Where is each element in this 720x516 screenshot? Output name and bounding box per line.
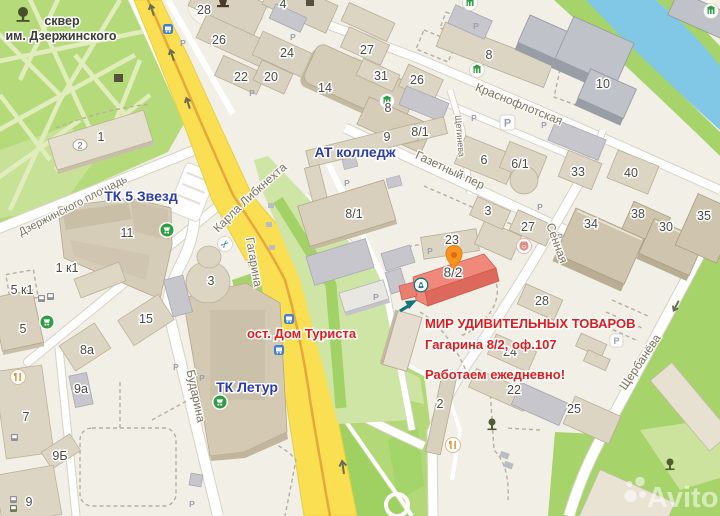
svg-text:20: 20 xyxy=(264,70,278,84)
svg-text:ТК 5 Звезд: ТК 5 Звезд xyxy=(104,188,178,204)
svg-text:33: 33 xyxy=(571,165,585,179)
svg-text:8: 8 xyxy=(486,48,493,62)
svg-text:7: 7 xyxy=(23,410,30,424)
svg-text:40: 40 xyxy=(624,166,638,180)
svg-text:6/1: 6/1 xyxy=(511,157,528,171)
svg-text:P: P xyxy=(290,32,296,42)
svg-text:P: P xyxy=(504,118,511,130)
svg-text:P: P xyxy=(180,38,186,48)
svg-text:6: 6 xyxy=(481,153,488,167)
svg-text:28: 28 xyxy=(197,3,211,17)
svg-text:P: P xyxy=(344,178,350,188)
svg-text:1 к1: 1 к1 xyxy=(56,261,79,275)
svg-text:26: 26 xyxy=(212,33,226,47)
svg-text:1: 1 xyxy=(98,130,105,144)
svg-text:P: P xyxy=(373,292,379,302)
svg-text:10: 10 xyxy=(596,77,610,91)
svg-text:34: 34 xyxy=(584,217,598,231)
svg-text:P: P xyxy=(173,362,179,372)
svg-text:11: 11 xyxy=(121,226,134,240)
svg-text:26: 26 xyxy=(410,73,424,87)
svg-text:АТ колледж: АТ колледж xyxy=(314,144,396,160)
svg-text:2: 2 xyxy=(437,397,444,411)
svg-text:8/1: 8/1 xyxy=(411,125,428,139)
svg-text:5: 5 xyxy=(20,322,27,336)
svg-text:P: P xyxy=(613,336,619,346)
svg-text:28: 28 xyxy=(535,294,549,308)
svg-text:22: 22 xyxy=(234,70,248,84)
svg-text:9: 9 xyxy=(26,495,33,509)
svg-text:ТК Летур: ТК Летур xyxy=(216,379,278,395)
svg-text:8а: 8а xyxy=(80,343,94,357)
svg-text:2: 2 xyxy=(77,141,82,151)
svg-text:9а: 9а xyxy=(74,382,88,396)
svg-text:14: 14 xyxy=(318,81,332,95)
svg-text:27: 27 xyxy=(360,43,374,57)
svg-text:3: 3 xyxy=(485,204,492,218)
svg-text:31: 31 xyxy=(374,69,388,83)
svg-text:P: P xyxy=(471,113,477,123)
svg-text:23: 23 xyxy=(445,233,459,247)
svg-text:МИР УДИВИТЕЛЬНЫХ ТОВАРОВ: МИР УДИВИТЕЛЬНЫХ ТОВАРОВ xyxy=(425,316,636,331)
svg-text:9Б: 9Б xyxy=(52,449,67,463)
svg-text:8/1: 8/1 xyxy=(345,207,362,221)
svg-text:8: 8 xyxy=(385,101,392,115)
svg-text:5 к1: 5 к1 xyxy=(11,283,34,297)
svg-text:24: 24 xyxy=(280,46,294,60)
svg-text:3: 3 xyxy=(208,274,215,288)
svg-text:P: P xyxy=(537,202,543,212)
svg-text:P: P xyxy=(189,499,195,509)
svg-text:Гагарина 8/2, оф.107: Гагарина 8/2, оф.107 xyxy=(425,337,557,352)
svg-text:Avito: Avito xyxy=(647,482,718,514)
svg-text:27: 27 xyxy=(521,220,535,234)
svg-text:им. Дзержинского: им. Дзержинского xyxy=(5,29,116,43)
svg-text:30: 30 xyxy=(659,220,673,234)
svg-text:сквер: сквер xyxy=(44,14,80,28)
svg-text:9: 9 xyxy=(384,130,391,144)
svg-text:P: P xyxy=(249,88,255,98)
svg-text:38: 38 xyxy=(631,207,645,221)
svg-text:ост. Дом Туриста: ост. Дом Туриста xyxy=(247,326,357,341)
svg-text:25: 25 xyxy=(567,402,581,416)
svg-text:15: 15 xyxy=(139,312,153,326)
svg-text:35: 35 xyxy=(697,209,711,223)
svg-text:Работаем ежедневно!: Работаем ежедневно! xyxy=(425,367,565,382)
svg-text:P: P xyxy=(473,21,479,31)
svg-text:4: 4 xyxy=(280,0,287,11)
svg-text:P: P xyxy=(427,246,433,256)
svg-text:22: 22 xyxy=(507,383,521,397)
